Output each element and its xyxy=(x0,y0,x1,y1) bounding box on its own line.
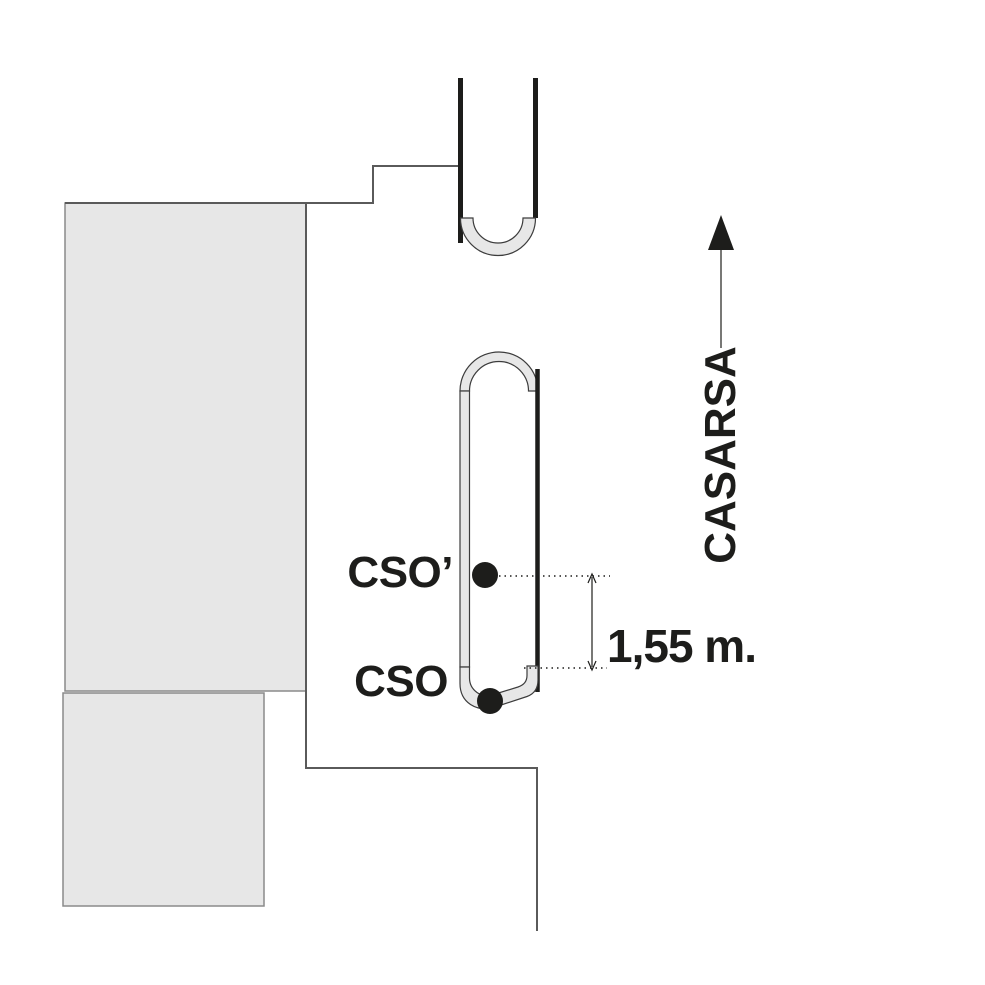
island-arch-curb xyxy=(460,352,538,391)
point-marker-cso xyxy=(477,688,503,714)
plan-drawing xyxy=(0,0,985,985)
building-block-upper xyxy=(65,203,306,691)
point-marker-cso-prime xyxy=(472,562,498,588)
measurement-label: 1,55 m. xyxy=(607,623,756,669)
road-stub-curb xyxy=(461,218,536,256)
island-left-curb xyxy=(460,391,470,667)
building-block-lower xyxy=(63,693,264,906)
label-cso: CSO xyxy=(354,660,448,704)
street-name-label: CASARSA xyxy=(698,305,744,605)
site-plan-diagram: CSO’ CSO 1,55 m. CASARSA xyxy=(0,0,985,985)
street-contour-upper xyxy=(65,166,461,203)
label-cso-prime: CSO’ xyxy=(347,551,453,595)
direction-arrow-head xyxy=(708,215,734,250)
